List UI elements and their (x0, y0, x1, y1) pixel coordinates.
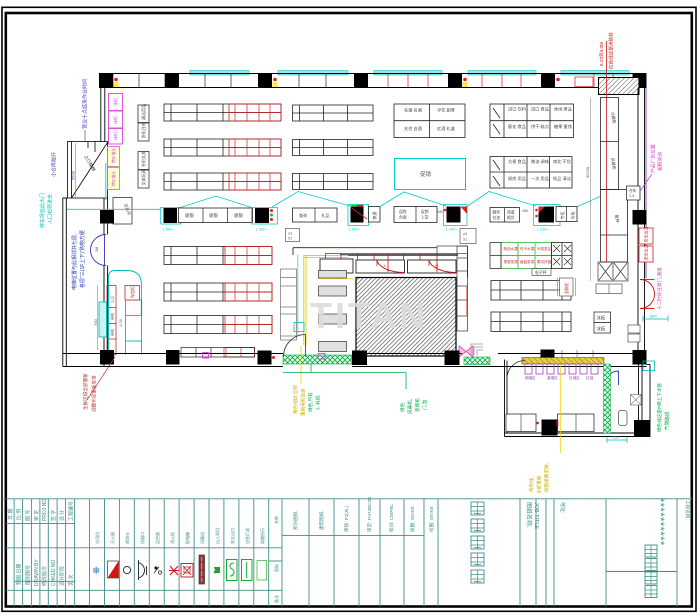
svg-text:名烟 名酒: 名烟 名酒 (404, 107, 422, 114)
svg-text:洗化日杂: 洗化日杂 (140, 123, 146, 139)
svg-text:地址:: 地址: (559, 502, 566, 513)
svg-text:菌菇菜类: 菌菇菜类 (520, 259, 535, 264)
svg-text:促销: 促销 (420, 170, 432, 178)
svg-text:L 500 ⌐: L 500 ⌐ (163, 228, 175, 232)
svg-text:工程名称,: 工程名称, (684, 500, 691, 520)
svg-text:700: 700 (93, 319, 98, 326)
svg-text:服务: 服务 (493, 210, 501, 215)
svg-text:冷风机: 冷风机 (94, 532, 100, 544)
svg-text:迎宾: 迎宾 (399, 209, 407, 214)
svg-text:图标: 图标 (273, 564, 279, 572)
svg-text:PROJ NO: PROJ NO (42, 499, 48, 521)
svg-text:JOB TITLE: JOB TITLE (533, 502, 539, 529)
svg-text:冰柜: 冰柜 (597, 315, 606, 322)
svg-text:小仓库敞开: 小仓库敞开 (51, 152, 58, 177)
svg-text:安全出口: 安全出口 (643, 245, 649, 261)
svg-text:图纸名称,: 图纸名称, (525, 502, 533, 528)
svg-text:入: 入 (383, 263, 387, 268)
svg-text:设 计: 设 计 (59, 510, 66, 521)
svg-text:1.03: 1.03 (118, 318, 123, 327)
svg-text:促销: 促销 (421, 209, 429, 214)
svg-text:建筑图纸,: 建筑图纸, (318, 510, 325, 530)
svg-text:门,型: 门,型 (422, 399, 429, 410)
svg-text:L 500 ⌐: L 500 ⌐ (256, 228, 268, 232)
svg-text:蛋糕柜: 蛋糕柜 (564, 282, 569, 294)
svg-text:日 期: 日 期 (8, 509, 14, 520)
svg-text:审定: FH74BC3B: 审定: FH74BC3B (366, 497, 373, 532)
svg-text:3500: 3500 (71, 170, 76, 180)
svg-text:设计阶段: 设计阶段 (59, 566, 66, 586)
svg-text:南北 干货: 南北 干货 (553, 158, 571, 165)
svg-text:专柜: 专柜 (559, 212, 565, 220)
svg-text:1.4: 1.4 (629, 194, 634, 198)
svg-text:L 150 ⌐: L 150 ⌐ (537, 228, 549, 232)
svg-text:监控器: 监控器 (154, 532, 160, 544)
svg-text:装卸机: 装卸机 (414, 398, 421, 412)
svg-text:黄色线段:全部: 黄色线段:全部 (292, 385, 299, 414)
svg-text:绘图: OKIKE: 绘图: OKIKE (428, 506, 435, 532)
svg-text:粮油 调味: 粮油 调味 (531, 158, 550, 165)
svg-text:配电箱: 配电箱 (184, 532, 190, 544)
svg-text:果切拼盘: 果切拼盘 (537, 259, 552, 264)
svg-text:名优 白酒: 名优 白酒 (404, 125, 422, 132)
svg-text:安全出口: 安全出口 (643, 227, 649, 243)
svg-text:审核: PJ(JIL): 审核: PJ(JIL) (343, 505, 350, 532)
svg-text:进口 食品: 进口 食品 (531, 106, 549, 113)
svg-text:电子秤: 电子秤 (535, 270, 547, 275)
svg-text:450: 450 (438, 210, 444, 214)
svg-text:51: 51 (463, 238, 467, 242)
svg-text:TITAN: TITAN (310, 295, 428, 336)
svg-text:**********: ********** (654, 498, 666, 546)
svg-text:精品水果: 精品水果 (504, 246, 519, 251)
svg-text:疏散指示: 疏散指示 (259, 528, 265, 544)
svg-text:冰柜: 冰柜 (597, 326, 606, 333)
svg-text:存包柜: 存包柜 (129, 286, 135, 298)
svg-text:白酒区: 白酒区 (569, 375, 580, 380)
svg-text:电梯位置与此相邻共七层,: 电梯位置与此相邻共七层, (71, 234, 78, 290)
svg-text:礼品: 礼品 (322, 212, 330, 218)
svg-text:气管路线: 气管路线 (664, 411, 671, 430)
svg-text:DRAWN BY: DRAWN BY (34, 559, 40, 586)
svg-text:绿色,所有: 绿色,所有 (307, 392, 314, 412)
svg-text:厨房 用品: 厨房 用品 (508, 175, 526, 182)
svg-text:台面: 台面 (399, 215, 407, 220)
svg-text:图别图号: 图别图号 (24, 565, 31, 585)
svg-text:进口 饮料: 进口 饮料 (508, 106, 527, 113)
svg-text:特价堆头: 特价堆头 (111, 148, 116, 163)
svg-text:2M: 2M (95, 247, 99, 252)
svg-text:停车场在此大门: 停车场在此大门 (39, 193, 46, 228)
svg-text:膨化 食品: 膨化 食品 (508, 123, 526, 130)
svg-text:根茎菜类: 根茎菜类 (504, 259, 519, 264)
svg-text:红酒: 红酒 (586, 375, 594, 380)
svg-text:6.23到4.3M: 6.23到4.3M (598, 42, 604, 66)
svg-text:核图: OKIKE: 核图: OKIKE (409, 506, 416, 532)
svg-text:冲饮 副食: 冲饮 副食 (437, 107, 456, 114)
svg-text:出入闸机: 出入闸机 (214, 528, 220, 544)
svg-text:绿色,: 绿色, (399, 402, 405, 412)
svg-text:纸品 清洁: 纸品 清洁 (553, 175, 571, 182)
svg-text:产品广告位置: 产品广告位置 (650, 144, 657, 173)
svg-text:风幕机: 风幕机 (199, 532, 205, 544)
svg-text:叶菜类区: 叶菜类区 (537, 246, 552, 251)
svg-text:上货: 上货 (421, 215, 429, 220)
svg-text:3. 料机: 3. 料机 (315, 395, 322, 410)
svg-text:台咨: 台咨 (493, 215, 501, 220)
svg-text:特价堆头: 特价堆头 (111, 171, 116, 186)
svg-text:CHKED NO: CHKED NO (51, 559, 57, 586)
svg-text:各层"三(1F上下)"购物方便: 各层"三(1F上下)"购物方便 (79, 230, 86, 288)
svg-text:应急灯具: 应急灯具 (244, 528, 250, 544)
svg-text:出: 出 (435, 263, 439, 268)
svg-text:校对: CWPBL: 校对: CWPBL (388, 503, 395, 532)
svg-text:部分图纸,: 部分图纸, (292, 510, 299, 530)
svg-text:排烟口: 排烟口 (139, 532, 145, 544)
svg-text:糖果 蜜饯: 糖果 蜜饯 (554, 123, 572, 130)
svg-text:风幕机,: 风幕机, (407, 399, 414, 414)
svg-text:消火栓: 消火栓 (169, 532, 175, 544)
svg-text:比 例: 比 例 (16, 509, 23, 520)
svg-text:❄: ❄ (92, 566, 100, 577)
svg-text:L 500 ⌐: L 500 ⌐ (349, 228, 361, 232)
svg-text:51: 51 (288, 237, 292, 241)
svg-text:按图纸要求做,: 按图纸要求做, (543, 463, 550, 492)
svg-text:图 号: 图 号 (25, 510, 31, 521)
svg-text:入口: 入口 (110, 295, 115, 303)
svg-text:饼干 糕点: 饼干 糕点 (531, 123, 549, 130)
svg-text:冰柜: 冰柜 (112, 98, 118, 106)
svg-text:全部重新: 全部重新 (536, 475, 543, 494)
svg-text:换货: 换货 (507, 215, 515, 220)
svg-text:快速: 快速 (371, 212, 377, 220)
svg-text:名称: 名称 (273, 516, 279, 524)
svg-text:入口右转进去: 入口右转进去 (47, 194, 54, 224)
svg-text:文体玩具: 文体玩具 (140, 170, 146, 186)
svg-text:35700: 35700 (585, 166, 590, 178)
svg-text:收银: 收银 (209, 212, 218, 219)
svg-text:≥3: ≥3 (463, 232, 467, 236)
svg-text:十二时间任意门,通道: 十二时间任意门,通道 (656, 267, 663, 310)
svg-text:450: 450 (522, 209, 528, 213)
svg-text:专柜: 专柜 (570, 212, 576, 220)
svg-text:绿色线这是P梯上下水管: 绿色线这是P梯上下水管 (656, 383, 663, 432)
svg-text:闸机: 闸机 (110, 312, 115, 320)
svg-text:时令水果: 时令水果 (520, 246, 535, 251)
svg-text:重新隔断加装: 重新隔断加装 (300, 388, 307, 416)
svg-text:消防: 消防 (555, 419, 560, 427)
svg-text:700: 700 (612, 435, 619, 440)
svg-text:红酒 礼盒: 红酒 礼盒 (437, 125, 456, 132)
svg-text:仓年: 仓年 (629, 188, 637, 193)
svg-text:询退: 询退 (507, 210, 515, 215)
svg-text:工程编号: 工程编号 (68, 501, 75, 521)
svg-text:营业十点结束作业时间: 营业十点结束作业时间 (82, 79, 89, 129)
svg-text:收银: 收银 (234, 212, 243, 219)
svg-text:查询: 查询 (299, 212, 307, 218)
svg-text:备注: 备注 (273, 595, 279, 603)
svg-text:修改版次: 修改版次 (41, 566, 48, 586)
svg-text:喷淋头: 喷淋头 (124, 532, 130, 544)
svg-text:审 定: 审 定 (33, 510, 40, 521)
svg-text:两色线,: 两色线, (528, 477, 534, 492)
svg-text:红色线这是消防栓: 红色线这是消防栓 (608, 32, 615, 69)
svg-text:签 字: 签 字 (50, 510, 57, 521)
svg-text:冰柜: 冰柜 (112, 116, 118, 124)
svg-text:一次 用品: 一次 用品 (531, 175, 549, 182)
svg-text:调整布局重新安排: 调整布局重新安排 (91, 375, 98, 412)
svg-text:香烟区: 香烟区 (547, 375, 558, 380)
svg-text:≥3: ≥3 (288, 232, 292, 236)
svg-text:页 次: 页 次 (68, 575, 75, 586)
svg-text:闸机: 闸机 (110, 328, 115, 336)
svg-text:休闲 食品: 休闲 食品 (554, 106, 572, 113)
svg-text:清洁用品: 清洁用品 (140, 104, 146, 120)
svg-text:安全出口: 安全出口 (229, 528, 235, 544)
svg-text:针织文具: 针织文具 (140, 151, 146, 167)
svg-text:烟酒区: 烟酒区 (525, 375, 536, 380)
svg-text:方便 食品: 方便 食品 (508, 158, 526, 165)
svg-text:相框采纳: 相框采纳 (657, 152, 664, 171)
svg-text:制图:日期: 制图:日期 (16, 564, 23, 585)
svg-text:灭火器: 灭火器 (110, 532, 115, 544)
svg-text:生鲜区域全部重新: 生鲜区域全部重新 (82, 373, 89, 410)
svg-text:L 150 ⌐: L 150 ⌐ (446, 228, 458, 232)
svg-text:收银: 收银 (185, 212, 194, 219)
svg-text:冰柜: 冰柜 (112, 132, 118, 140)
svg-text:600: 600 (650, 314, 657, 319)
